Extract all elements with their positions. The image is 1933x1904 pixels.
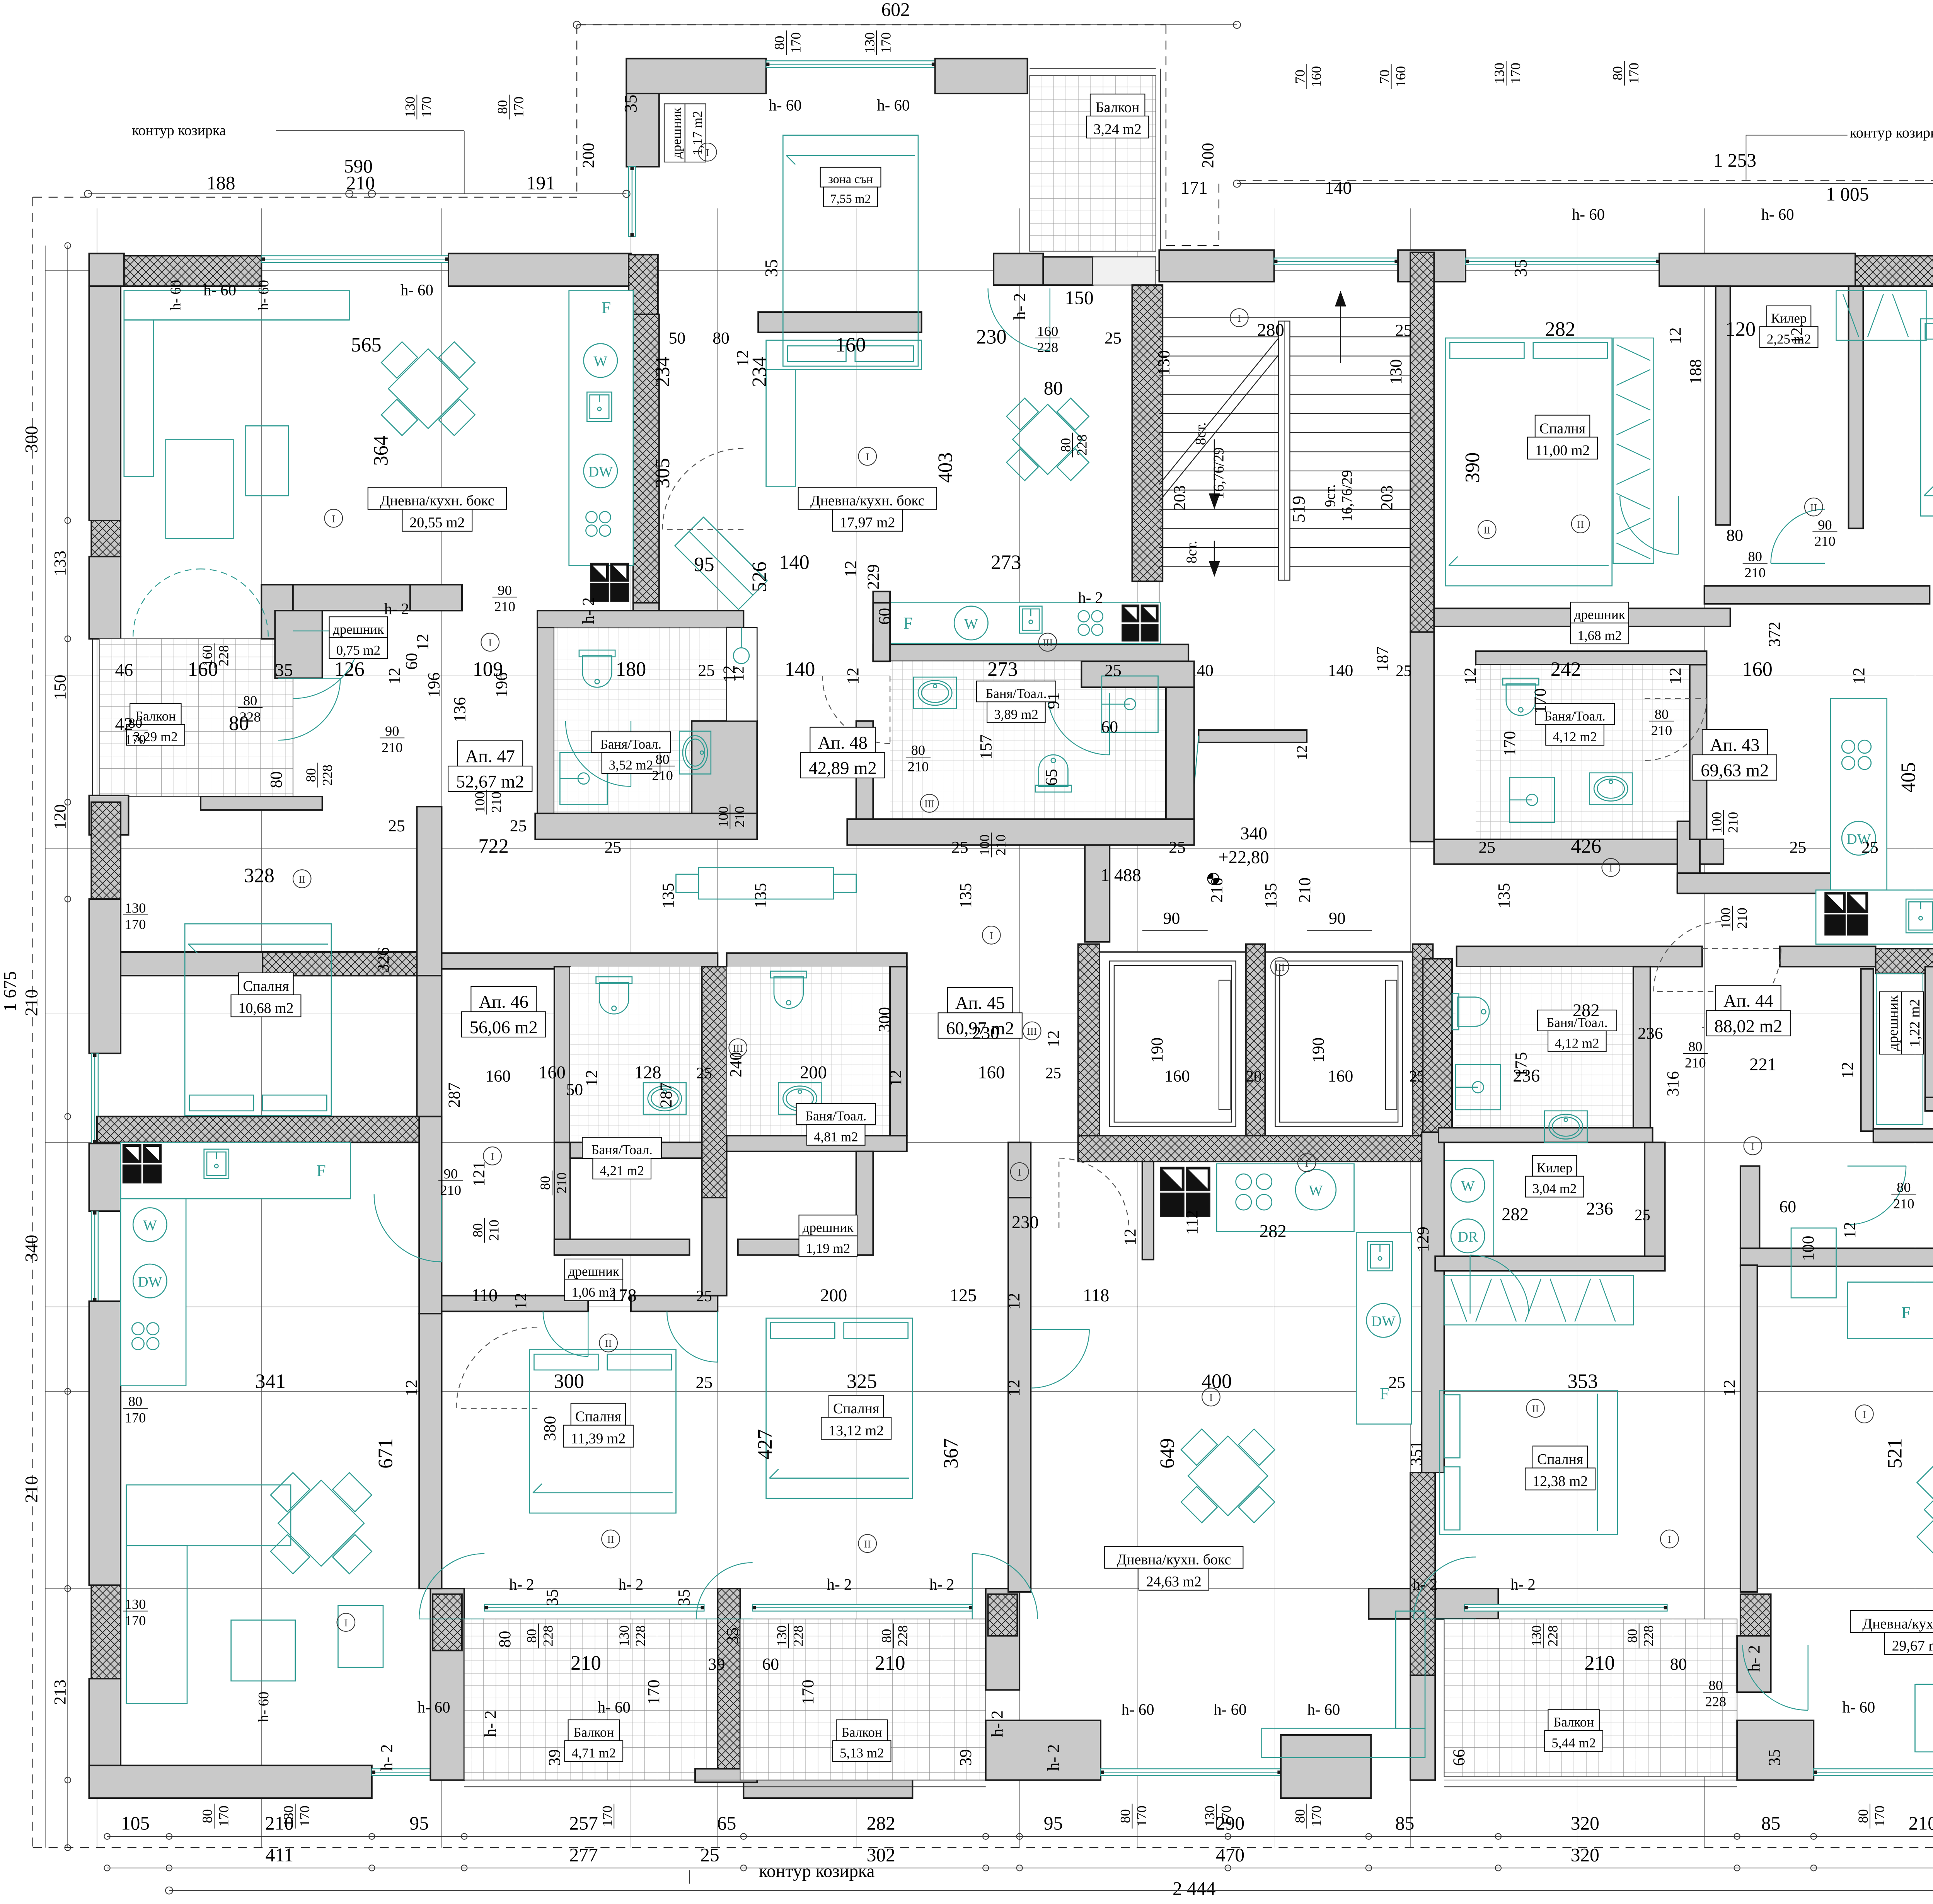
svg-text:Дневна/кухн. бокс: Дневна/кухн. бокс (1117, 1552, 1231, 1568)
svg-text:228: 228 (1705, 1694, 1726, 1710)
svg-text:722: 722 (478, 835, 509, 858)
svg-text:170: 170 (799, 1679, 817, 1705)
svg-text:210: 210 (993, 834, 1009, 856)
svg-text:Ап. 46: Ап. 46 (479, 992, 528, 1012)
svg-text:95: 95 (409, 1813, 429, 1834)
svg-text:65: 65 (1042, 769, 1060, 786)
svg-text:188: 188 (1686, 359, 1705, 385)
svg-text:4,71 m2: 4,71 m2 (572, 1745, 616, 1761)
svg-text:25: 25 (1105, 329, 1122, 348)
svg-text:100: 100 (1709, 812, 1724, 833)
svg-text:649: 649 (1156, 1438, 1178, 1469)
svg-text:210: 210 (1734, 908, 1750, 929)
svg-text:3,04 m2: 3,04 m2 (1532, 1181, 1577, 1196)
svg-text:90: 90 (1329, 909, 1346, 928)
svg-text:25: 25 (1790, 838, 1807, 857)
svg-text:80: 80 (1670, 1655, 1687, 1674)
svg-text:188: 188 (206, 172, 235, 193)
svg-text:0,75 m2: 0,75 m2 (336, 643, 381, 658)
svg-text:h- 60: h- 60 (877, 97, 910, 114)
svg-text:426: 426 (1571, 835, 1601, 858)
svg-text:210: 210 (732, 806, 747, 827)
svg-text:170: 170 (788, 32, 803, 53)
svg-text:I: I (1668, 1534, 1671, 1545)
svg-text:дрешник: дрешник (669, 107, 684, 159)
svg-text:4,12 m2: 4,12 m2 (1555, 1036, 1599, 1051)
svg-text:210: 210 (1893, 1196, 1914, 1211)
svg-text:316: 316 (1664, 1071, 1682, 1097)
svg-text:12: 12 (1005, 1293, 1023, 1310)
svg-text:h- 2: h- 2 (1011, 293, 1029, 320)
svg-text:130: 130 (125, 900, 146, 916)
svg-text:W: W (964, 616, 978, 632)
svg-text:25: 25 (1395, 321, 1412, 340)
svg-text:135: 135 (752, 883, 770, 909)
svg-text:170: 170 (125, 916, 146, 932)
svg-text:66: 66 (1450, 1749, 1468, 1766)
svg-text:178: 178 (610, 1285, 637, 1305)
svg-text:121: 121 (470, 1161, 488, 1187)
svg-text:h- 60: h- 60 (1761, 206, 1794, 223)
svg-text:II: II (1484, 525, 1490, 536)
svg-text:80: 80 (713, 329, 730, 348)
svg-text:160: 160 (1164, 1067, 1190, 1085)
svg-text:200: 200 (1198, 143, 1217, 168)
svg-text:170: 170 (878, 32, 894, 53)
svg-text:8ст.: 8ст. (1184, 541, 1200, 563)
svg-text:12: 12 (1666, 667, 1684, 684)
svg-text:210: 210 (652, 768, 673, 783)
svg-text:130: 130 (774, 1625, 789, 1646)
svg-text:300: 300 (554, 1370, 584, 1393)
svg-text:133: 133 (51, 551, 69, 576)
svg-text:2 444: 2 444 (1173, 1878, 1215, 1899)
svg-text:160: 160 (485, 1067, 511, 1085)
svg-text:25: 25 (696, 1064, 712, 1082)
svg-text:130: 130 (125, 1597, 146, 1612)
svg-text:160: 160 (1393, 66, 1408, 87)
svg-text:+22,80: +22,80 (1218, 847, 1269, 867)
svg-text:25: 25 (696, 1373, 713, 1392)
svg-text:170: 170 (1531, 688, 1549, 713)
svg-text:170: 170 (419, 96, 434, 118)
svg-text:16,76/29: 16,76/29 (1211, 447, 1227, 499)
svg-text:210: 210 (554, 1172, 569, 1194)
svg-text:I: I (332, 513, 335, 524)
svg-text:II: II (864, 1539, 871, 1550)
svg-text:200: 200 (800, 1062, 827, 1082)
svg-text:I: I (1751, 1141, 1755, 1152)
svg-text:Дневна/кухн. бокс: Дневна/кухн. бокс (380, 493, 494, 509)
svg-text:II: II (1810, 502, 1817, 513)
svg-text:25: 25 (700, 1844, 719, 1865)
svg-text:228: 228 (319, 764, 335, 786)
svg-text:210: 210 (908, 759, 929, 774)
svg-text:III: III (1043, 637, 1053, 648)
svg-text:126: 126 (334, 658, 365, 681)
svg-text:175: 175 (1512, 1052, 1530, 1078)
svg-text:60: 60 (875, 608, 894, 625)
svg-text:12: 12 (886, 1070, 905, 1087)
svg-text:160: 160 (1742, 658, 1773, 681)
svg-text:200: 200 (820, 1285, 847, 1305)
svg-text:1 253: 1 253 (1713, 150, 1756, 171)
svg-text:I: I (491, 1151, 494, 1162)
svg-text:h- 60: h- 60 (769, 97, 802, 114)
svg-text:h- 2: h- 2 (827, 1576, 852, 1593)
svg-text:230: 230 (976, 326, 1007, 348)
svg-text:80: 80 (1655, 706, 1669, 722)
svg-text:25: 25 (698, 661, 715, 680)
svg-text:210: 210 (21, 989, 41, 1016)
svg-text:9ст.: 9ст. (1322, 485, 1338, 507)
svg-text:3,89 m2: 3,89 m2 (994, 707, 1038, 722)
svg-text:170: 170 (297, 1805, 312, 1827)
svg-text:80: 80 (655, 751, 669, 767)
svg-text:85: 85 (1761, 1813, 1781, 1834)
svg-text:273: 273 (991, 551, 1021, 573)
svg-text:390: 390 (1461, 452, 1484, 483)
svg-text:282: 282 (867, 1813, 895, 1834)
svg-text:196: 196 (425, 672, 443, 698)
svg-text:326: 326 (374, 947, 393, 973)
svg-text:56,06 m2: 56,06 m2 (470, 1017, 538, 1037)
svg-text:170: 170 (1508, 63, 1523, 84)
svg-text:I: I (990, 930, 993, 941)
svg-text:170: 170 (1872, 1805, 1887, 1827)
svg-text:170: 170 (511, 96, 527, 118)
svg-text:128: 128 (634, 1062, 661, 1082)
svg-text:100: 100 (977, 834, 992, 856)
svg-text:210: 210 (1208, 877, 1226, 903)
svg-text:12,38 m2: 12,38 m2 (1532, 1473, 1588, 1489)
svg-text:12: 12 (1841, 1222, 1859, 1239)
svg-text:дрешник: дрешник (1574, 607, 1626, 622)
svg-text:170: 170 (1500, 731, 1519, 756)
svg-text:Дневна/кухн. бокс: Дневна/кухн. бокс (1862, 1616, 1933, 1632)
svg-text:282: 282 (1502, 1204, 1529, 1224)
svg-text:16,76/29: 16,76/29 (1339, 470, 1355, 522)
svg-text:229: 229 (864, 564, 883, 590)
svg-text:210: 210 (494, 599, 515, 614)
svg-text:110: 110 (471, 1285, 498, 1305)
svg-text:12: 12 (1788, 327, 1806, 344)
svg-text:80: 80 (524, 1629, 539, 1643)
svg-text:100: 100 (1718, 908, 1734, 929)
svg-text:h- 60: h- 60 (418, 1699, 450, 1716)
svg-text:203: 203 (1378, 485, 1396, 511)
svg-text:130: 130 (1529, 1625, 1544, 1646)
svg-text:35: 35 (723, 1628, 742, 1645)
svg-text:240: 240 (726, 1052, 745, 1078)
svg-text:282: 282 (1545, 318, 1575, 340)
svg-text:90: 90 (1818, 517, 1832, 532)
svg-text:Спалня: Спалня (1539, 420, 1585, 437)
svg-text:Дневна/кухн. бокс: Дневна/кухн. бокс (810, 493, 925, 509)
svg-text:12: 12 (583, 1070, 601, 1087)
svg-text:39: 39 (956, 1749, 975, 1766)
svg-text:80: 80 (772, 36, 787, 50)
svg-text:50: 50 (669, 329, 686, 348)
svg-text:85: 85 (1395, 1813, 1415, 1834)
svg-text:12: 12 (1838, 1062, 1857, 1079)
svg-text:90: 90 (498, 582, 511, 598)
svg-text:320: 320 (1571, 1813, 1599, 1834)
svg-text:129: 129 (1414, 1227, 1432, 1252)
svg-text:h- 60: h- 60 (256, 280, 272, 311)
svg-text:287: 287 (657, 1082, 675, 1108)
svg-text:140: 140 (785, 658, 815, 681)
svg-text:60: 60 (1101, 718, 1118, 736)
svg-text:12: 12 (1294, 745, 1310, 760)
svg-text:h- 2: h- 2 (929, 1576, 955, 1593)
svg-text:135: 135 (1495, 883, 1514, 909)
svg-text:565: 565 (351, 334, 382, 356)
svg-text:196: 196 (492, 672, 511, 698)
svg-text:Балкон: Балкон (1553, 1715, 1594, 1730)
svg-text:427: 427 (754, 1429, 776, 1460)
svg-text:135: 135 (956, 883, 975, 909)
svg-text:140: 140 (1325, 178, 1352, 198)
svg-text:100: 100 (716, 806, 731, 827)
svg-text:118: 118 (1083, 1285, 1109, 1305)
svg-text:Ап. 48: Ап. 48 (818, 733, 868, 753)
svg-text:I: I (1609, 863, 1613, 874)
svg-text:80: 80 (1726, 526, 1743, 545)
svg-text:80: 80 (1292, 1809, 1307, 1823)
svg-text:157: 157 (977, 734, 995, 760)
svg-text:228: 228 (1074, 435, 1090, 456)
svg-text:95: 95 (694, 553, 714, 576)
svg-text:353: 353 (1568, 1370, 1598, 1393)
svg-text:h- 60: h- 60 (1122, 1701, 1154, 1718)
svg-text:4,81 m2: 4,81 m2 (814, 1129, 858, 1144)
svg-text:1,68 m2: 1,68 m2 (1577, 628, 1622, 643)
svg-text:230: 230 (1012, 1212, 1039, 1232)
svg-text:11,00 m2: 11,00 m2 (1535, 442, 1590, 459)
svg-text:13,12 m2: 13,12 m2 (828, 1423, 884, 1439)
svg-text:60: 60 (402, 653, 421, 670)
svg-text:17,97 m2: 17,97 m2 (840, 515, 895, 531)
svg-text:h- 60: h- 60 (168, 280, 184, 311)
svg-text:80: 80 (496, 1631, 514, 1648)
svg-text:170: 170 (599, 1805, 615, 1827)
svg-text:180: 180 (616, 658, 646, 681)
svg-text:25: 25 (1105, 661, 1122, 680)
svg-text:135: 135 (1261, 883, 1280, 909)
svg-text:140: 140 (779, 551, 810, 573)
svg-text:340: 340 (21, 1235, 41, 1262)
svg-text:282: 282 (1573, 1000, 1600, 1020)
svg-text:521: 521 (1884, 1438, 1906, 1469)
svg-text:300: 300 (875, 1007, 894, 1032)
svg-text:70: 70 (1377, 70, 1392, 84)
svg-text:280: 280 (1257, 320, 1284, 340)
svg-text:160: 160 (1309, 66, 1324, 87)
svg-text:171: 171 (1181, 178, 1208, 198)
svg-text:130: 130 (402, 96, 418, 118)
svg-text:h- 60: h- 60 (1214, 1701, 1247, 1718)
svg-text:287: 287 (445, 1082, 464, 1108)
svg-text:7,55 m2: 7,55 m2 (830, 191, 871, 205)
svg-text:228: 228 (240, 709, 261, 725)
svg-text:210: 210 (1725, 812, 1741, 833)
svg-text:282: 282 (1260, 1221, 1287, 1241)
svg-text:F: F (602, 299, 611, 317)
svg-text:DR: DR (1457, 1229, 1478, 1245)
svg-text:65: 65 (717, 1813, 736, 1834)
svg-text:160: 160 (539, 1062, 566, 1082)
svg-text:42: 42 (115, 714, 133, 734)
svg-text:дрешник: дрешник (568, 1264, 620, 1279)
svg-text:39: 39 (708, 1655, 725, 1674)
svg-text:80: 80 (128, 1394, 142, 1409)
svg-text:228: 228 (1641, 1625, 1656, 1646)
svg-text:20,55 m2: 20,55 m2 (409, 515, 465, 531)
svg-text:160: 160 (199, 645, 215, 666)
svg-text:671: 671 (374, 1438, 397, 1469)
svg-text:3,52 m2: 3,52 m2 (609, 758, 653, 773)
svg-text:Килер: Килер (1537, 1160, 1572, 1175)
svg-text:DW: DW (1371, 1313, 1396, 1329)
svg-text:257: 257 (569, 1813, 598, 1834)
svg-text:170: 170 (216, 1805, 231, 1827)
svg-text:69,63 m2: 69,63 m2 (1701, 760, 1769, 780)
svg-text:80: 80 (537, 1176, 553, 1190)
svg-text:46: 46 (115, 660, 133, 680)
svg-text:1,22 m2: 1,22 m2 (1907, 999, 1923, 1047)
svg-text:52,67 m2: 52,67 m2 (456, 772, 524, 792)
svg-text:210: 210 (488, 792, 504, 813)
svg-text:90: 90 (444, 1166, 458, 1182)
svg-text:III: III (1275, 962, 1285, 973)
svg-text:80: 80 (243, 693, 257, 708)
svg-text:80: 80 (1709, 1677, 1723, 1693)
svg-text:h- 2: h- 2 (1413, 1576, 1438, 1593)
svg-text:II: II (1532, 1403, 1539, 1414)
svg-text:F: F (903, 614, 913, 633)
svg-text:170: 170 (125, 1410, 146, 1425)
svg-text:I: I (1209, 1392, 1213, 1403)
svg-text:12: 12 (1461, 667, 1480, 684)
svg-text:411: 411 (266, 1844, 293, 1865)
svg-text:170: 170 (1218, 1805, 1234, 1827)
svg-text:12: 12 (1044, 1030, 1063, 1048)
svg-text:112: 112 (1183, 1210, 1202, 1235)
svg-text:I: I (1238, 313, 1241, 324)
svg-text:F: F (1901, 1303, 1911, 1322)
svg-text:210: 210 (21, 1476, 41, 1503)
svg-text:340: 340 (1240, 824, 1267, 844)
svg-text:170: 170 (1134, 1805, 1149, 1827)
svg-text:25: 25 (388, 817, 405, 835)
svg-text:80: 80 (1624, 1629, 1640, 1643)
svg-text:405: 405 (1897, 762, 1919, 793)
svg-text:526: 526 (748, 561, 771, 592)
svg-text:125: 125 (950, 1285, 977, 1305)
svg-text:80: 80 (1688, 1039, 1702, 1054)
svg-text:h- 2: h- 2 (579, 597, 598, 624)
svg-text:W: W (1309, 1182, 1323, 1199)
svg-text:контур козирка: контур козирка (759, 1861, 875, 1881)
svg-text:380: 380 (541, 1416, 559, 1442)
svg-text:120: 120 (1725, 318, 1756, 340)
svg-text:Баня/Тоал.: Баня/Тоал. (591, 1142, 653, 1157)
svg-text:95: 95 (1044, 1813, 1063, 1834)
svg-text:210: 210 (486, 1220, 502, 1241)
svg-text:12: 12 (414, 634, 432, 651)
svg-text:80: 80 (267, 771, 286, 788)
svg-text:Ап. 44: Ап. 44 (1723, 991, 1773, 1011)
svg-text:130: 130 (1155, 350, 1173, 375)
svg-text:Балкон: Балкон (842, 1725, 882, 1740)
svg-text:210: 210 (1909, 1813, 1933, 1834)
svg-text:234: 234 (651, 357, 674, 387)
svg-text:h- 2: h- 2 (481, 1710, 499, 1737)
svg-text:Ап. 45: Ап. 45 (955, 993, 1005, 1013)
svg-text:130: 130 (1202, 1805, 1217, 1827)
svg-text:150: 150 (1065, 287, 1093, 309)
svg-text:140: 140 (1328, 661, 1353, 680)
svg-text:305: 305 (651, 458, 674, 488)
svg-text:дрешник: дрешник (803, 1220, 854, 1235)
svg-text:h- 2: h- 2 (1745, 1645, 1763, 1672)
svg-text:228: 228 (1037, 340, 1059, 355)
svg-text:12: 12 (1121, 1228, 1139, 1245)
svg-text:W: W (143, 1218, 157, 1234)
svg-text:h- 60: h- 60 (1572, 206, 1605, 223)
svg-text:130: 130 (281, 1805, 296, 1827)
svg-text:50: 50 (566, 1080, 583, 1099)
svg-text:h- 2: h- 2 (1078, 589, 1103, 606)
svg-text:Ап. 43: Ап. 43 (1710, 735, 1760, 755)
svg-text:дрешник: дрешник (333, 622, 384, 637)
svg-text:1 675: 1 675 (0, 971, 20, 1012)
svg-text:200: 200 (579, 143, 598, 168)
svg-text:130: 130 (1492, 63, 1507, 84)
svg-text:80: 80 (1855, 1809, 1871, 1823)
svg-text:W: W (593, 353, 607, 370)
svg-text:210: 210 (346, 172, 375, 193)
svg-text:II: II (298, 874, 305, 885)
svg-text:130: 130 (862, 32, 877, 53)
svg-text:F: F (1380, 1385, 1389, 1403)
svg-text:100: 100 (472, 792, 488, 813)
svg-text:12: 12 (511, 1293, 530, 1310)
svg-text:210: 210 (1295, 877, 1314, 903)
svg-text:12: 12 (733, 350, 752, 367)
svg-text:5,44 m2: 5,44 m2 (1551, 1735, 1596, 1750)
svg-text:Баня/Тоал.: Баня/Тоал. (600, 737, 661, 752)
svg-text:170: 170 (1626, 63, 1642, 84)
svg-text:h- 60: h- 60 (401, 281, 433, 299)
svg-text:I: I (488, 637, 492, 648)
svg-text:228: 228 (895, 1625, 910, 1646)
svg-text:80: 80 (494, 100, 510, 114)
svg-text:Ап. 47: Ап. 47 (465, 746, 515, 766)
svg-text:II: II (605, 1338, 612, 1349)
svg-text:80: 80 (911, 742, 925, 758)
svg-text:210: 210 (571, 1652, 601, 1674)
svg-text:Балкон: Балкон (1096, 99, 1139, 116)
svg-text:12: 12 (844, 667, 863, 684)
svg-text:80: 80 (1897, 1180, 1911, 1195)
svg-text:228: 228 (790, 1625, 806, 1646)
svg-text:1,19 m2: 1,19 m2 (806, 1241, 851, 1256)
svg-text:h- 2: h- 2 (377, 1744, 396, 1771)
svg-text:12: 12 (1720, 1380, 1739, 1397)
svg-text:300: 300 (21, 426, 41, 453)
